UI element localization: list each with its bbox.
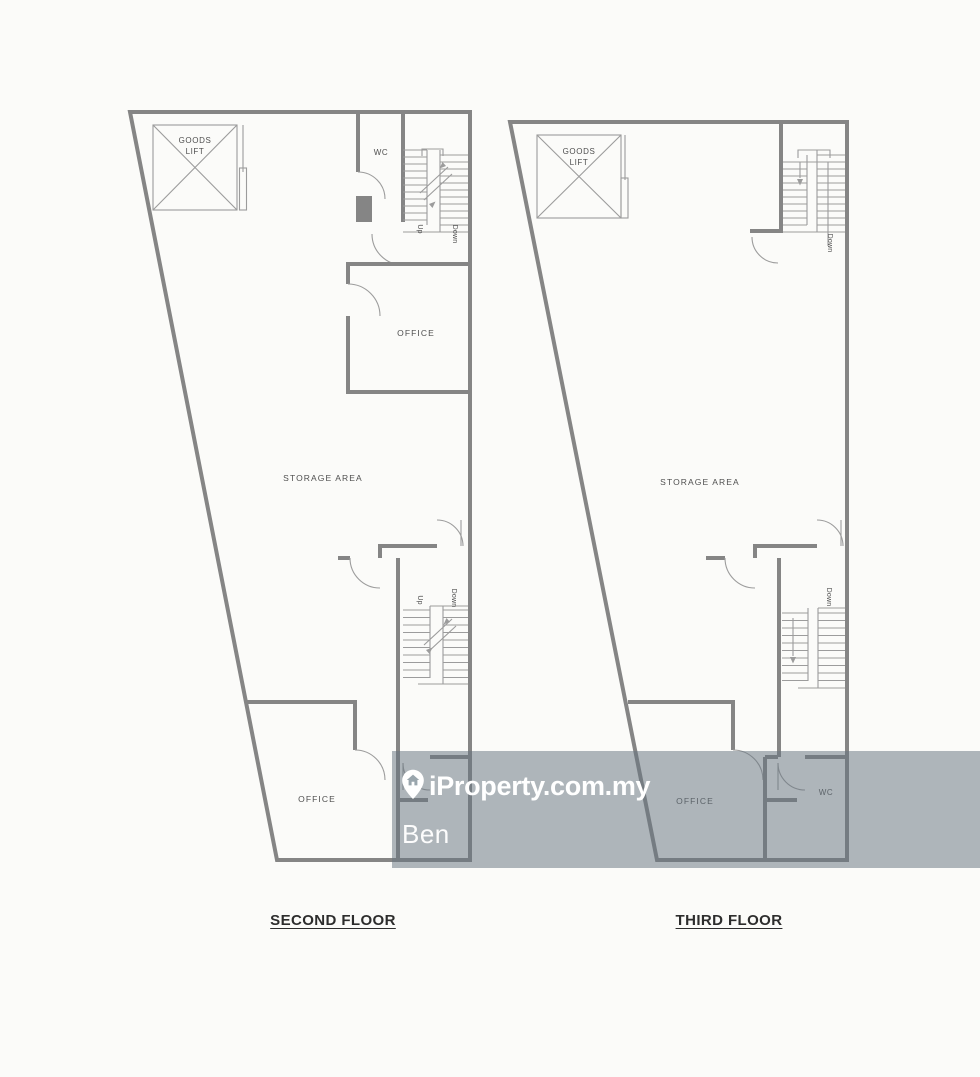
stairs-up-label: Up — [416, 224, 423, 233]
stair-door-arc-right — [437, 520, 463, 546]
floor-plan-third: GOODS LIFT Down STORAGE AREA — [510, 122, 847, 860]
floor-title-second: SECOND FLOOR — [270, 912, 396, 929]
office-label: OFFICE — [397, 328, 435, 338]
location-pin-icon — [401, 769, 425, 800]
stair-top-landing — [798, 150, 830, 158]
goods-lift-door — [240, 168, 247, 210]
stairs-down-label: Down — [826, 234, 833, 253]
office-label: OFFICE — [298, 794, 336, 804]
floor-plan-second: GOODS LIFT WC U — [130, 112, 470, 860]
storage-area-label: STORAGE AREA — [660, 477, 740, 487]
corridor-door-arc — [372, 234, 403, 265]
floor-plan-page: GOODS LIFT WC U — [0, 0, 980, 1077]
office-room-bottom: OFFICE — [246, 702, 385, 804]
office-walls — [348, 264, 468, 284]
wc-room-top: WC — [356, 112, 403, 265]
stair-treads-left — [403, 150, 427, 220]
watermark-user-name: Ben — [402, 819, 450, 850]
stairs-up-label: Up — [416, 595, 423, 604]
office-door-arc — [348, 284, 380, 316]
stair-treads-left — [783, 162, 807, 225]
wc-label: WC — [374, 148, 389, 157]
stair-enclosure-walls — [380, 546, 437, 558]
goods-lift: GOODS LIFT — [153, 125, 247, 210]
goods-lift-label: LIFT — [186, 147, 205, 156]
stairs-down-label: Down — [825, 588, 832, 607]
stair-enclosure-walls — [750, 122, 781, 231]
stair-channel-lines — [808, 608, 818, 688]
office-walls — [628, 702, 733, 750]
staircase-top: Up Down — [403, 149, 468, 243]
staircase-middle: Down — [706, 520, 845, 757]
stair-door-arc-right — [817, 520, 843, 546]
stair-channel-lines — [430, 606, 443, 684]
floor-plan-drawing: GOODS LIFT WC U — [0, 0, 980, 1077]
stair-arrow — [426, 648, 433, 655]
stair-treads-left — [782, 613, 808, 681]
outer-wall — [510, 122, 847, 860]
stairs-down-label: Down — [450, 589, 457, 608]
watermark-brand: iProperty.com.my — [429, 771, 650, 802]
stair-treads-right — [817, 155, 845, 232]
goods-lift-label: GOODS — [563, 147, 596, 156]
watermark-band — [392, 751, 980, 868]
goods-lift-door — [621, 178, 628, 218]
stair-arrow — [429, 202, 436, 209]
wc-door-arc — [358, 172, 385, 199]
stair-door-arc-left — [725, 558, 755, 588]
stairs-down-label: Down — [451, 225, 458, 244]
office-walls — [246, 702, 355, 750]
wc-wall-pillar — [356, 196, 372, 222]
storage-area-label: STORAGE AREA — [283, 473, 363, 483]
goods-lift: GOODS LIFT — [537, 135, 628, 218]
stair-door-arc-left — [350, 558, 380, 588]
floor-title-third: THIRD FLOOR — [676, 912, 783, 929]
stair-arrow — [797, 179, 803, 186]
stair-enclosure-walls — [755, 546, 817, 558]
office-room-middle: OFFICE — [348, 264, 468, 392]
office-door-arc — [355, 750, 385, 780]
goods-lift-label: LIFT — [570, 158, 589, 167]
stair-treads-right — [818, 613, 845, 681]
goods-lift-label: GOODS — [179, 136, 212, 145]
stair-door-arc — [752, 237, 778, 263]
staircase-top: Down — [750, 122, 845, 263]
stair-arrow — [790, 657, 796, 664]
